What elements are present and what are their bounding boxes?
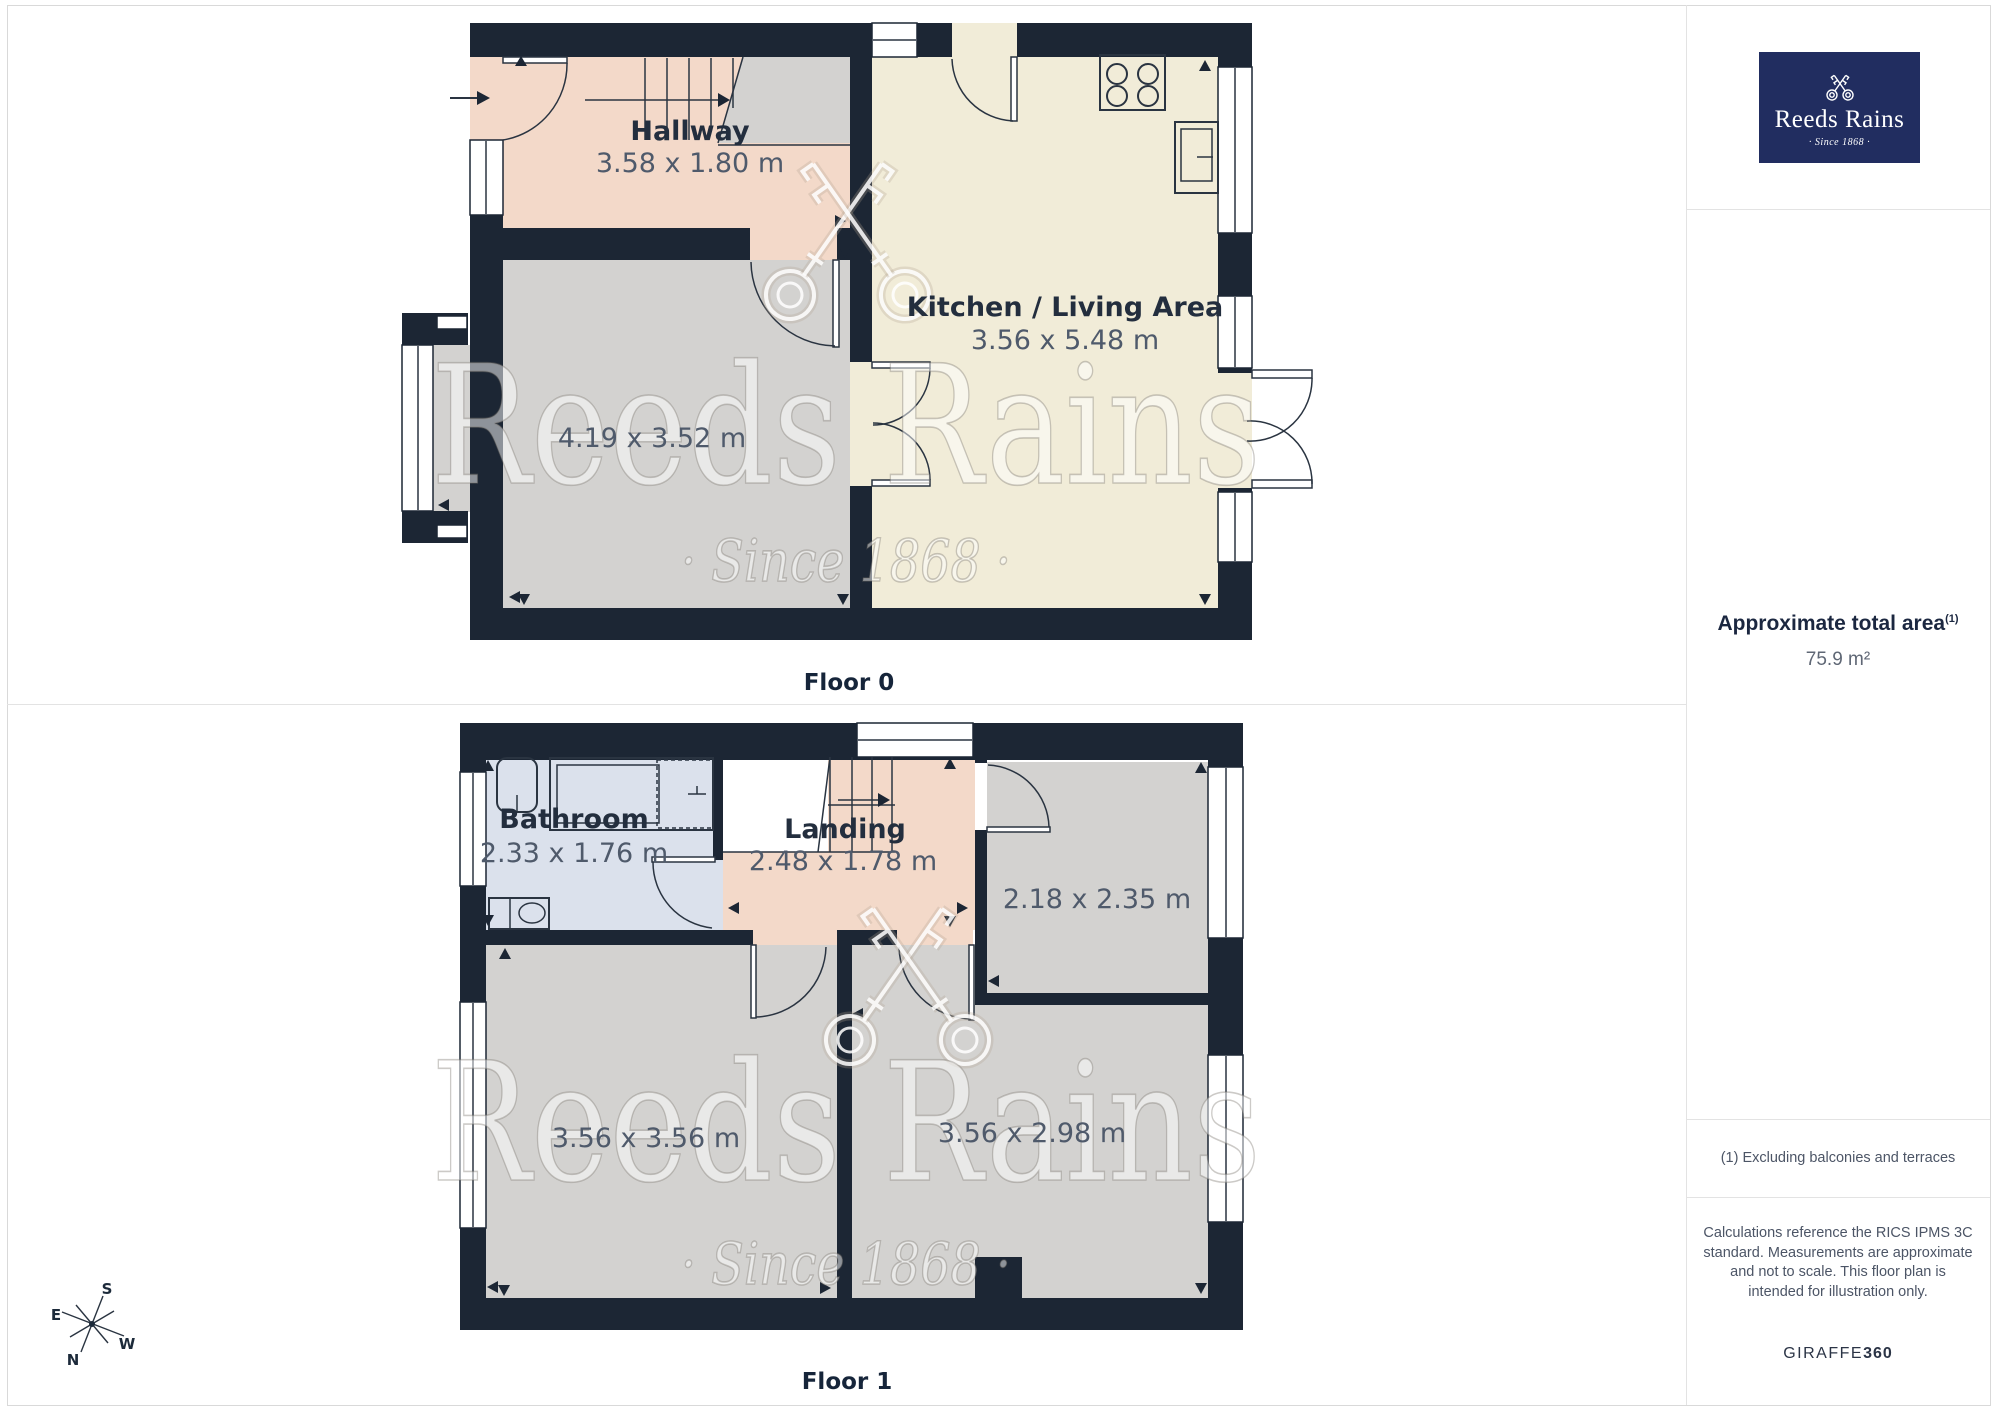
reeds-rains-logo: Reeds Rains · Since 1868 · — [1759, 52, 1920, 163]
floor0-reception-dims: 4.19 x 3.52 m — [558, 423, 746, 454]
floor0-kitchen-label: Kitchen / Living Area — [907, 292, 1224, 323]
floor0-title: Floor 0 — [804, 670, 895, 696]
floor0-kitchen-back-door-opening — [952, 23, 1017, 57]
floorplan-drawing: Reeds Rains · Since 1868 · Reeds Rains ·… — [0, 0, 2000, 1414]
floor1-bedroom-small-room — [987, 762, 1208, 993]
floor1-landing-dims: 2.48 x 1.78 m — [749, 846, 937, 877]
compass-north-label: N — [67, 1351, 80, 1369]
sidebar-footnote-divider-top — [1687, 1119, 1990, 1120]
total-area-value: 75.9 m² — [1686, 649, 1990, 671]
balconies-footnote: (1) Excluding balconies and terraces — [1686, 1150, 1990, 1166]
reeds-rains-watermark-floor0: Reeds Rains — [431, 330, 1261, 522]
floor1-title: Floor 1 — [802, 1369, 893, 1395]
floorplan-page: Reeds Rains · Since 1868 · Reeds Rains ·… — [0, 0, 2000, 1414]
measurements-disclaimer: Calculations reference the RICS IPMS 3C … — [1702, 1224, 1974, 1302]
sidebar-divider — [1686, 5, 1687, 1405]
since-1868-watermark-floor0: · Since 1868 · — [681, 527, 1011, 595]
floor0-hallway-label: Hallway — [630, 116, 750, 147]
sidebar-footnote-divider-bottom — [1687, 1197, 1990, 1198]
compass-south-label: S — [102, 1280, 113, 1298]
total-area-footnote-marker: (1) — [1945, 613, 1958, 625]
total-area-heading: Approximate total area(1) — [1686, 612, 1990, 636]
compass-east-label: E — [51, 1306, 61, 1324]
giraffe360-brand-name: GIRAFFE — [1783, 1345, 1863, 1362]
floor0-bay-side-window-bottom — [437, 525, 467, 538]
crossed-keys-icon — [1817, 68, 1863, 104]
floor0-hallway-dims: 3.58 x 1.80 m — [596, 148, 784, 179]
floor1-bedroom-small-dims: 2.18 x 2.35 m — [1003, 884, 1191, 915]
total-area-block: Approximate total area(1) 75.9 m² — [1686, 612, 1990, 671]
floors-section-divider — [7, 704, 1687, 705]
total-area-heading-text: Approximate total area — [1717, 612, 1945, 635]
floor0-bay-side-window-top — [437, 316, 467, 329]
floor1-landing-label: Landing — [784, 814, 906, 845]
giraffe360-brand: GIRAFFE360 — [1686, 1345, 1990, 1363]
compass-west-label: W — [119, 1335, 136, 1353]
floor1-bedroom-left-dims: 3.56 x 3.56 m — [552, 1123, 740, 1154]
floor1-bedroom-right-dims: 3.56 x 2.98 m — [938, 1118, 1126, 1149]
floor1-bathroom-dims: 2.33 x 1.76 m — [480, 838, 668, 869]
floor1-bedroom-small-door-opening — [975, 763, 987, 830]
logo-tagline: · Since 1868 · — [1809, 137, 1870, 148]
logo-wordmark: Reeds Rains — [1775, 106, 1905, 134]
floor1-bathroom-label: Bathroom — [499, 804, 648, 835]
giraffe360-brand-suffix: 360 — [1863, 1345, 1893, 1362]
floor0-kitchen-dims: 3.56 x 5.48 m — [971, 325, 1159, 356]
compass-rose: S E W N — [51, 1280, 136, 1369]
sidebar-logo-divider — [1687, 209, 1990, 210]
since-1868-watermark-floor1: · Since 1868 · — [681, 1230, 1011, 1298]
